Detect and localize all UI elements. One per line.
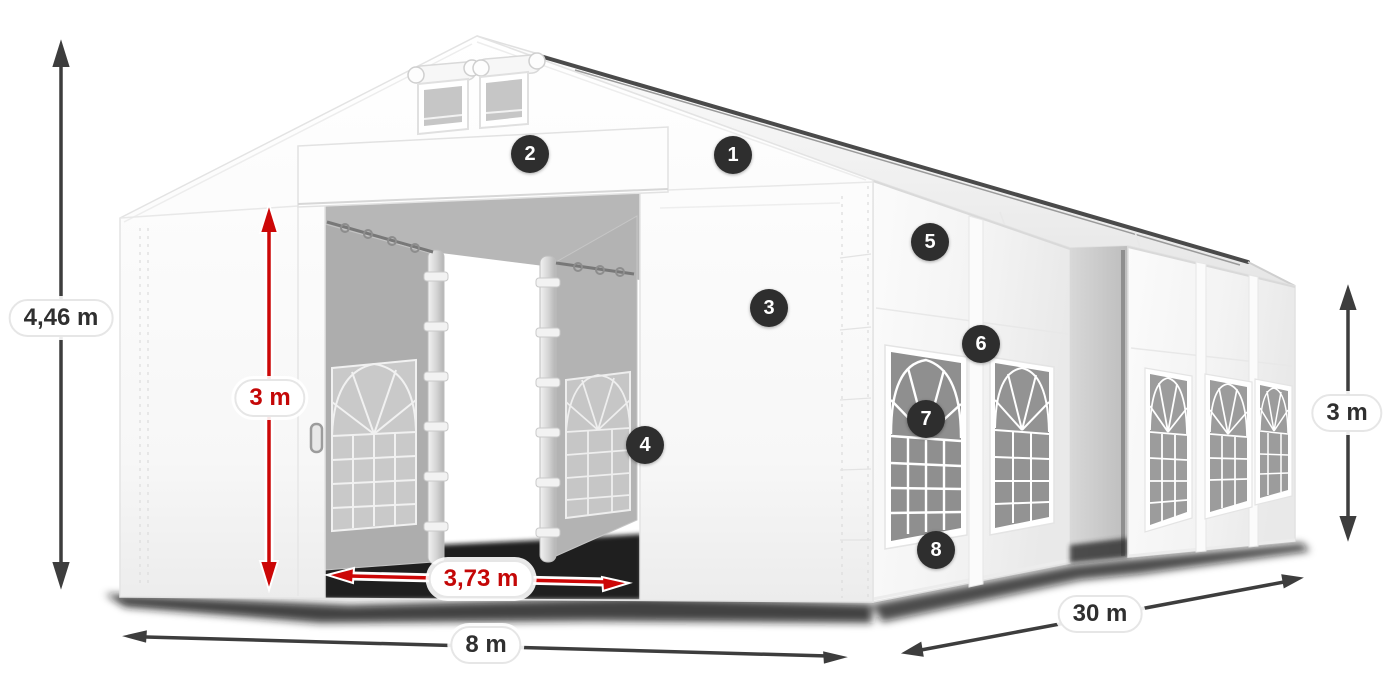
side-window-2 [990,357,1054,535]
side-window-1 [885,345,967,549]
side-window-5 [1255,379,1292,505]
width-label: 8 m [450,626,521,664]
vent-window-right [480,72,528,128]
side-height-label: 3 m [1311,394,1382,432]
entrance-width-label: 3,73 m [429,560,534,598]
side-doorway-gap [1070,246,1128,563]
wall-strap [969,216,983,587]
part-marker-1[interactable]: 1 [714,136,752,174]
part-marker-4[interactable]: 4 [626,426,664,464]
part-marker-2[interactable]: 2 [511,135,549,173]
part-marker-8[interactable]: 8 [917,531,955,569]
part-marker-5[interactable]: 5 [911,223,949,261]
vent-window-left [418,79,468,134]
roller-cap [408,67,424,83]
side-window-4 [1205,374,1252,519]
door-handle[interactable] [311,424,322,452]
part-marker-7[interactable]: 7 [907,400,945,438]
entrance-height-label: 3 m [234,379,305,417]
entrance-interior [320,180,645,605]
left-door-pole [424,250,448,564]
tent-dimensions-diagram: 1 2 3 4 5 6 7 8 4,46 m 3 m 3,73 m 8 m 30… [0,0,1400,700]
length-label: 30 m [1058,595,1143,633]
right-door-pole [536,256,560,562]
roller-cap [529,53,545,69]
total-height-label: 4,46 m [9,299,114,337]
part-marker-6[interactable]: 6 [962,325,1000,363]
side-window-3 [1145,368,1192,532]
left-door-leaf [325,224,433,570]
roller-cap [473,60,489,76]
part-marker-3[interactable]: 3 [750,289,788,327]
tent-illustration [0,0,1400,700]
